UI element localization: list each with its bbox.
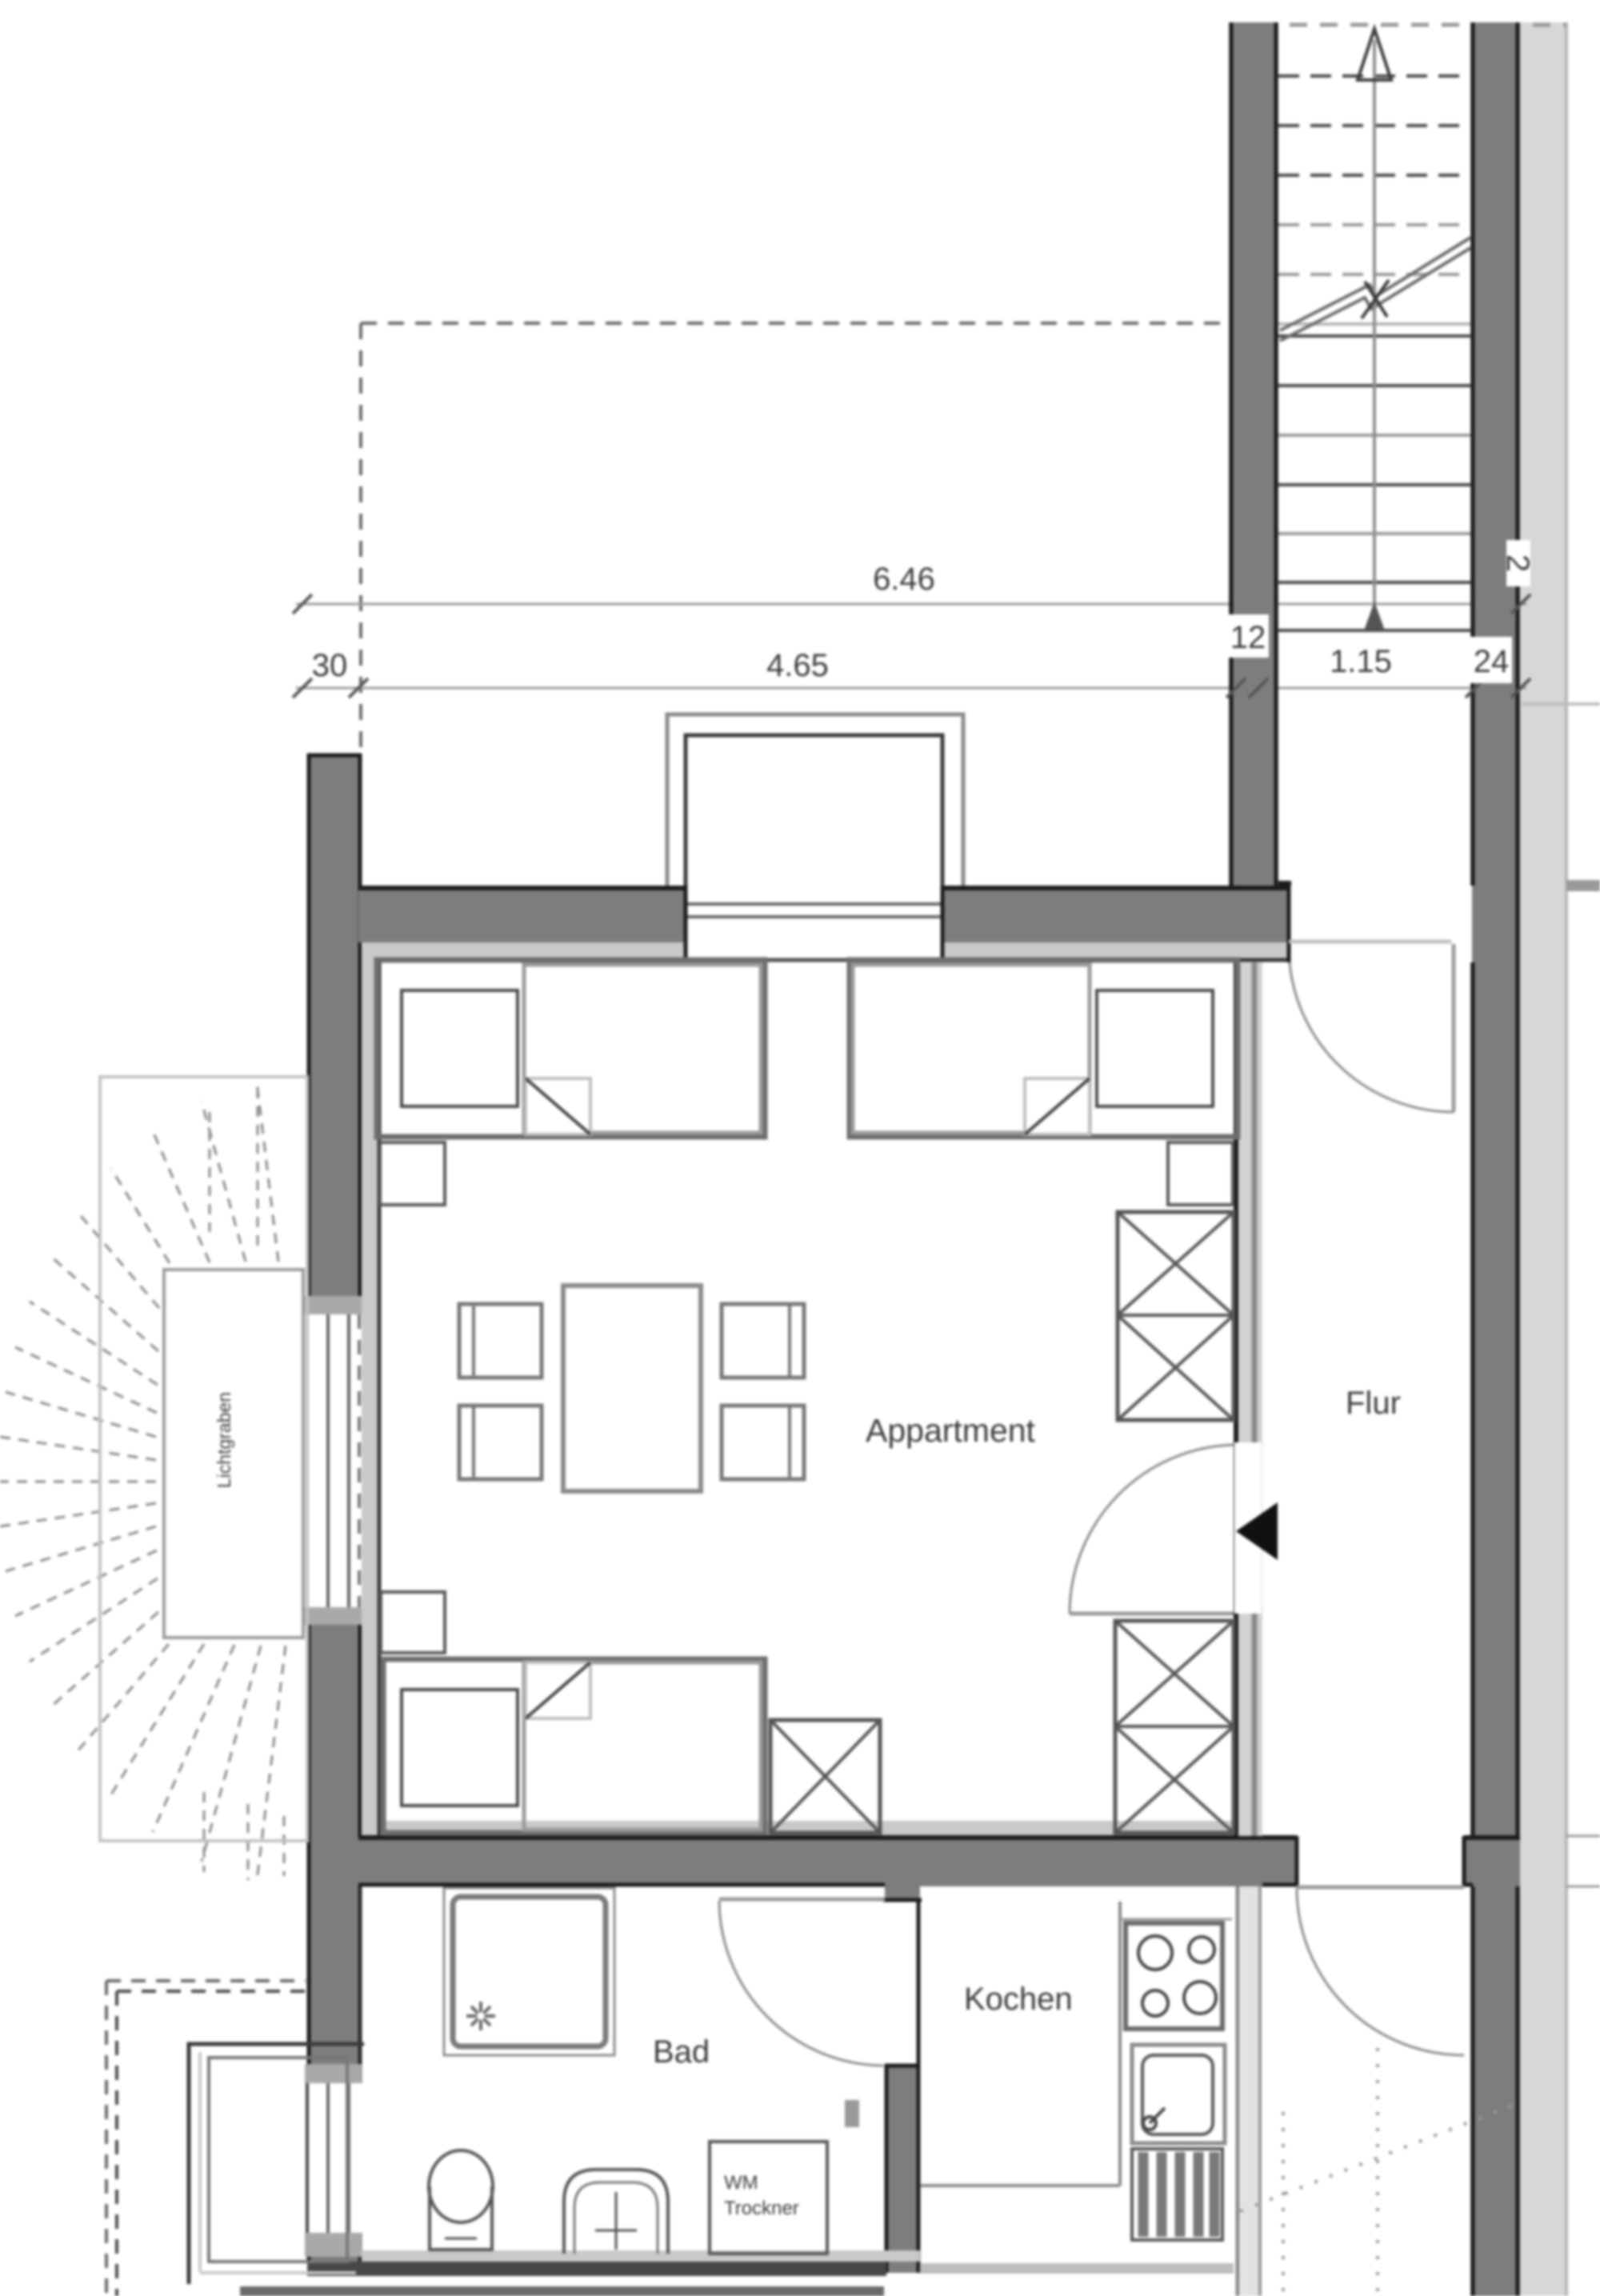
svg-text:12: 12: [1230, 620, 1266, 655]
svg-text:Bad: Bad: [653, 2034, 710, 2070]
svg-text:Appartment: Appartment: [866, 1412, 1036, 1449]
svg-text:30: 30: [312, 648, 348, 683]
svg-text:WM: WM: [724, 2172, 758, 2194]
svg-text:Trockner: Trockner: [724, 2198, 799, 2219]
svg-text:24: 24: [1474, 644, 1510, 679]
svg-text:1.15: 1.15: [1330, 644, 1392, 679]
svg-text:4.65: 4.65: [766, 648, 829, 683]
svg-text:6.46: 6.46: [873, 562, 935, 597]
svg-text:Kochen: Kochen: [964, 1982, 1073, 2017]
svg-text:2: 2: [1500, 554, 1535, 572]
svg-text:Lichtgraben: Lichtgraben: [214, 1392, 234, 1488]
svg-text:Flur: Flur: [1346, 1386, 1401, 1421]
